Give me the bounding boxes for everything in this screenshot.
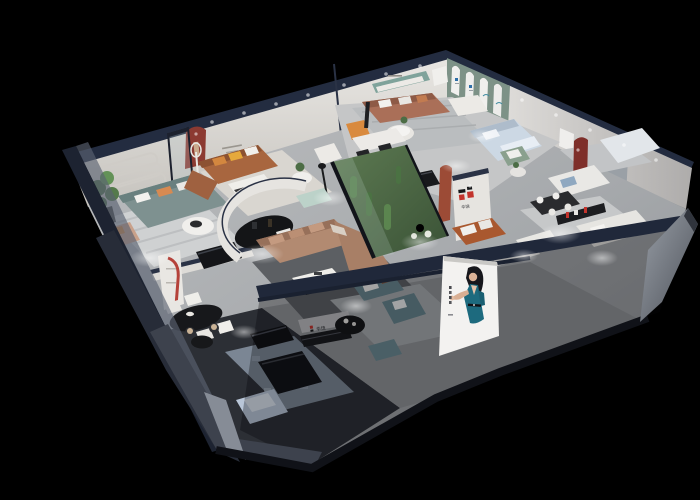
isometric-scene: 华饶 [0, 0, 700, 500]
cactus [384, 204, 391, 230]
plant-small [296, 163, 305, 172]
plant-small [513, 162, 519, 168]
showroom-render: 华饶 [0, 0, 700, 500]
cactus [396, 166, 401, 184]
cafe-table [191, 336, 213, 349]
vase [268, 219, 272, 227]
plant-small [401, 117, 408, 124]
poster-signature [448, 314, 453, 316]
vase [252, 222, 257, 229]
arch-logo-mark [455, 78, 458, 81]
side-table [510, 167, 526, 177]
model-face [469, 273, 477, 281]
rust-arch-niche [438, 165, 452, 223]
wall-text-bars [388, 75, 402, 77]
